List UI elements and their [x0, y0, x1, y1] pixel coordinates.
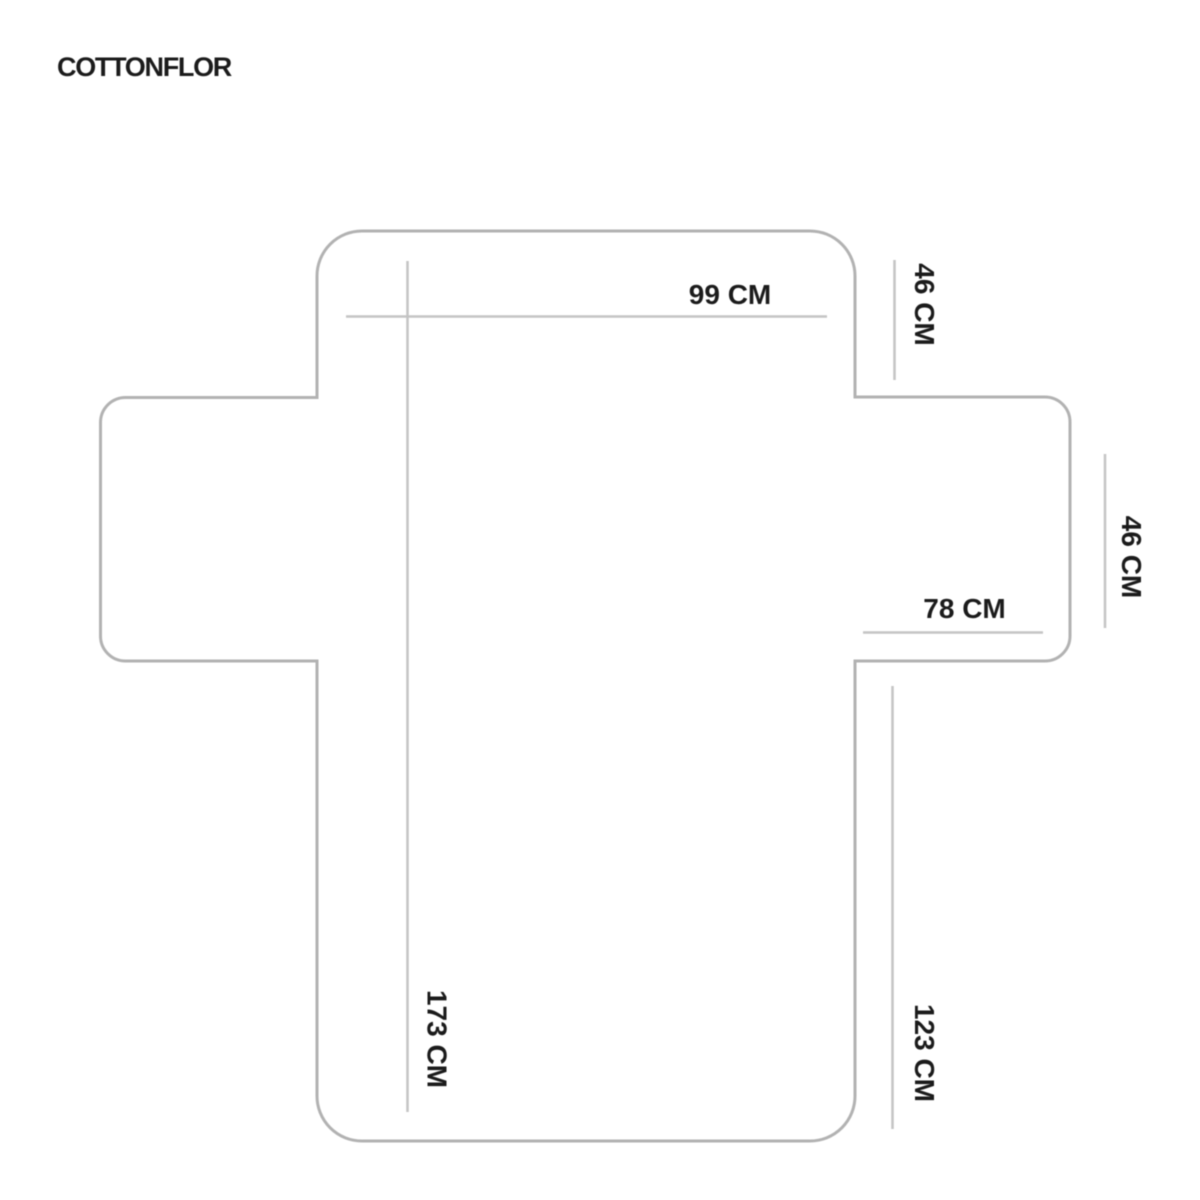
svg-text:173 CM: 173 CM [422, 990, 453, 1088]
svg-text:123 CM: 123 CM [909, 1004, 940, 1102]
svg-text:46 CM: 46 CM [909, 263, 940, 345]
svg-text:99 CM: 99 CM [689, 279, 771, 310]
svg-text:46 CM: 46 CM [1116, 516, 1147, 598]
svg-text:78 CM: 78 CM [923, 593, 1005, 624]
svg-text:COTTONFLOR: COTTONFLOR [57, 52, 232, 82]
